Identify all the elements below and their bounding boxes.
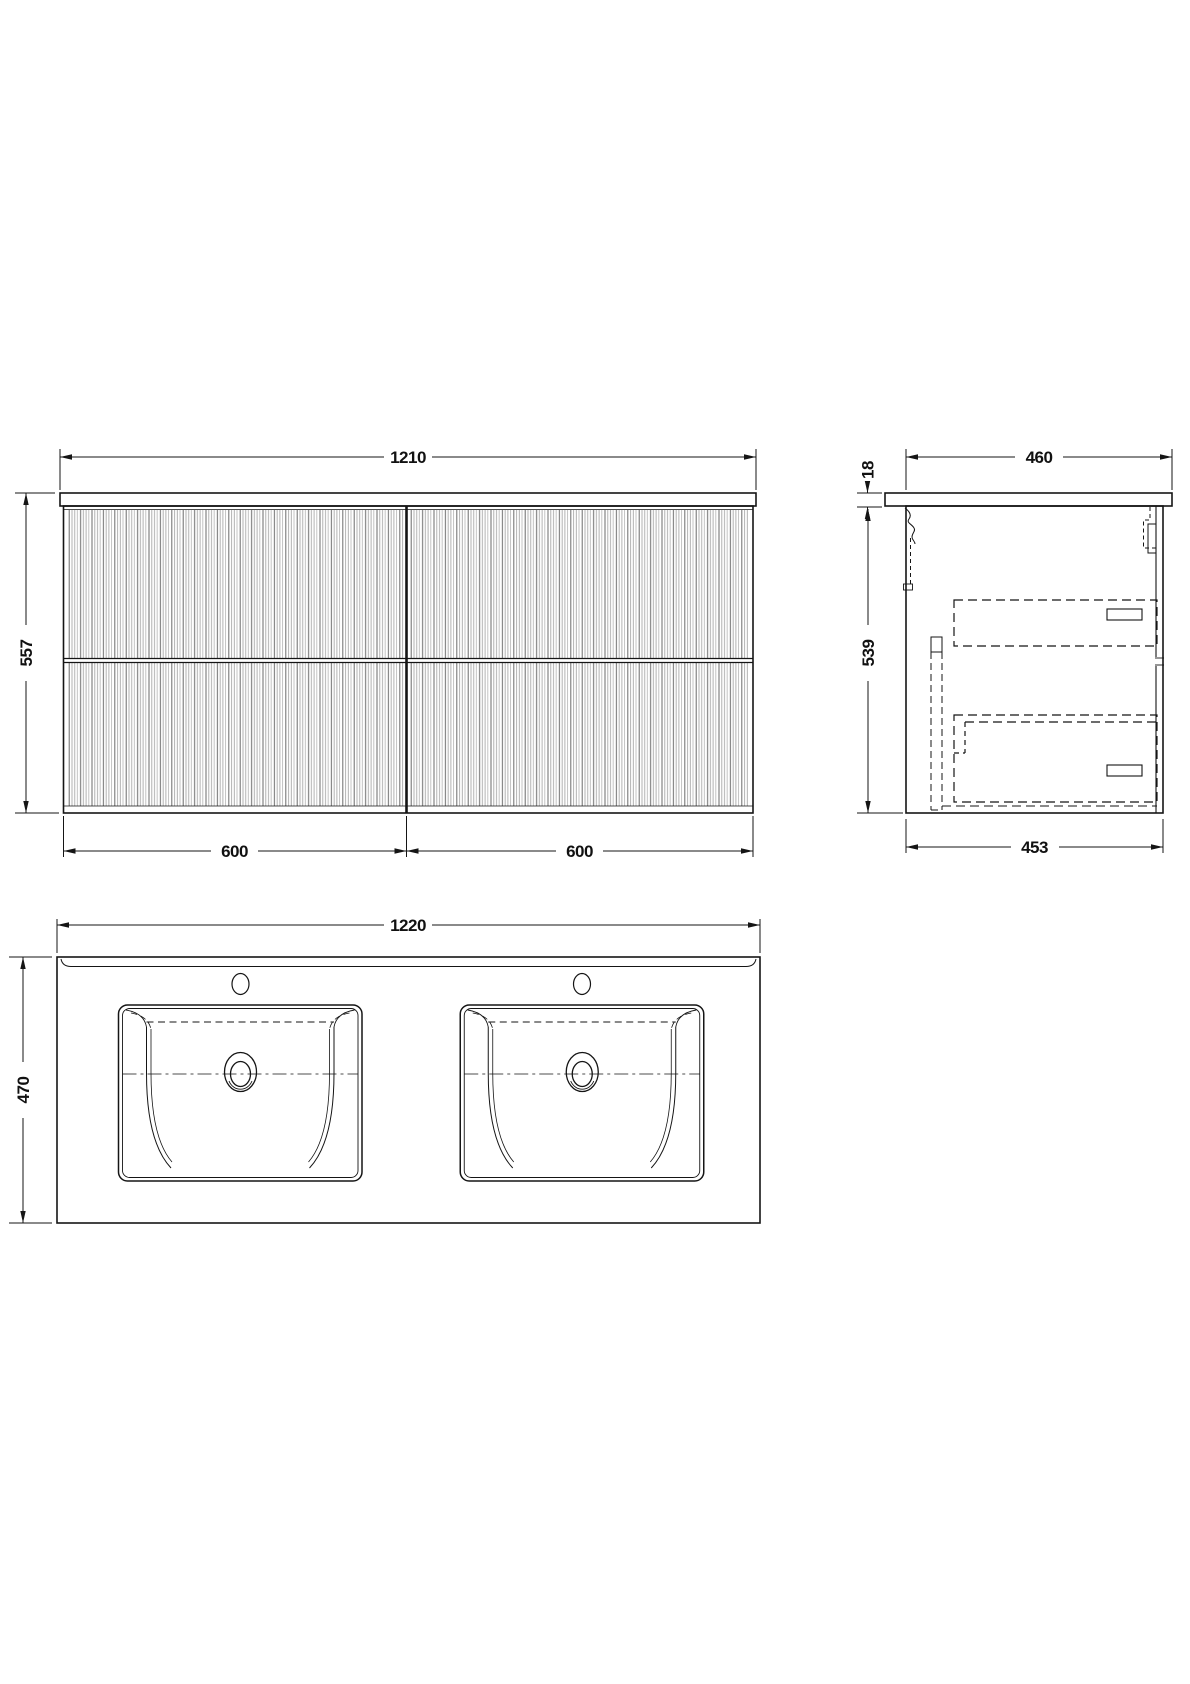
dim-front-left-section-label: 600 bbox=[221, 842, 248, 861]
dim-side-height-label: 539 bbox=[859, 640, 878, 667]
dim-front-height-label: 557 bbox=[17, 640, 36, 667]
flute-panel-top-left bbox=[67, 510, 404, 658]
technical-drawing: 1210 557 600 600 bbox=[0, 0, 1190, 1684]
dim-side-depth-label: 460 bbox=[1026, 448, 1053, 467]
drawing-canvas: 1210 557 600 600 bbox=[0, 0, 1190, 1684]
dim-front-right-section-label: 600 bbox=[566, 842, 593, 861]
flute-panel-top-right bbox=[409, 510, 749, 658]
flute-panel-bottom-right bbox=[409, 663, 749, 806]
flute-panel-bottom-left bbox=[67, 663, 404, 806]
dim-front-width-label: 1210 bbox=[390, 448, 426, 467]
dim-side-top-thickness-label: 18 bbox=[859, 461, 878, 479]
dim-side-cabinet-depth-label: 453 bbox=[1021, 838, 1048, 857]
page-background bbox=[0, 0, 1190, 1684]
dim-plan-width-label: 1220 bbox=[390, 916, 426, 935]
dim-plan-depth-label: 470 bbox=[14, 1077, 33, 1104]
